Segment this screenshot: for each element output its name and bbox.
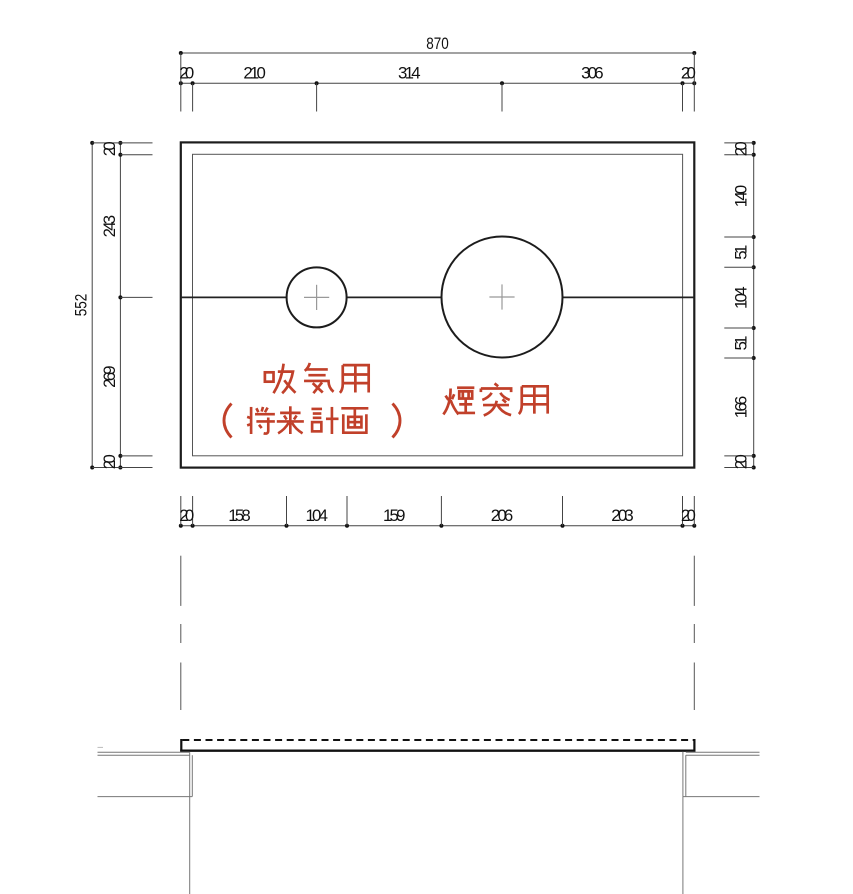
svg-text:159: 159 xyxy=(383,506,406,525)
svg-text:552: 552 xyxy=(72,294,91,317)
svg-text:210: 210 xyxy=(243,64,266,83)
svg-text:166: 166 xyxy=(732,396,751,419)
svg-text:20: 20 xyxy=(100,454,119,469)
svg-text:51: 51 xyxy=(732,336,751,351)
svg-text:104: 104 xyxy=(732,286,751,309)
svg-text:20: 20 xyxy=(681,64,696,83)
svg-text:306: 306 xyxy=(581,64,604,83)
svg-text:20: 20 xyxy=(732,141,751,156)
svg-text:206: 206 xyxy=(491,506,514,525)
svg-text:20: 20 xyxy=(681,506,696,525)
svg-text:51: 51 xyxy=(732,245,751,260)
svg-text:20: 20 xyxy=(179,506,194,525)
svg-text:140: 140 xyxy=(732,185,751,208)
svg-text:269: 269 xyxy=(100,365,119,388)
svg-text:314: 314 xyxy=(398,64,421,83)
svg-text:243: 243 xyxy=(100,215,119,238)
svg-text:20: 20 xyxy=(179,64,194,83)
svg-text:203: 203 xyxy=(611,506,634,525)
svg-text:158: 158 xyxy=(228,506,251,525)
svg-text:104: 104 xyxy=(305,506,328,525)
svg-text:20: 20 xyxy=(100,141,119,156)
svg-text:20: 20 xyxy=(732,454,751,469)
svg-text:870: 870 xyxy=(426,34,449,53)
